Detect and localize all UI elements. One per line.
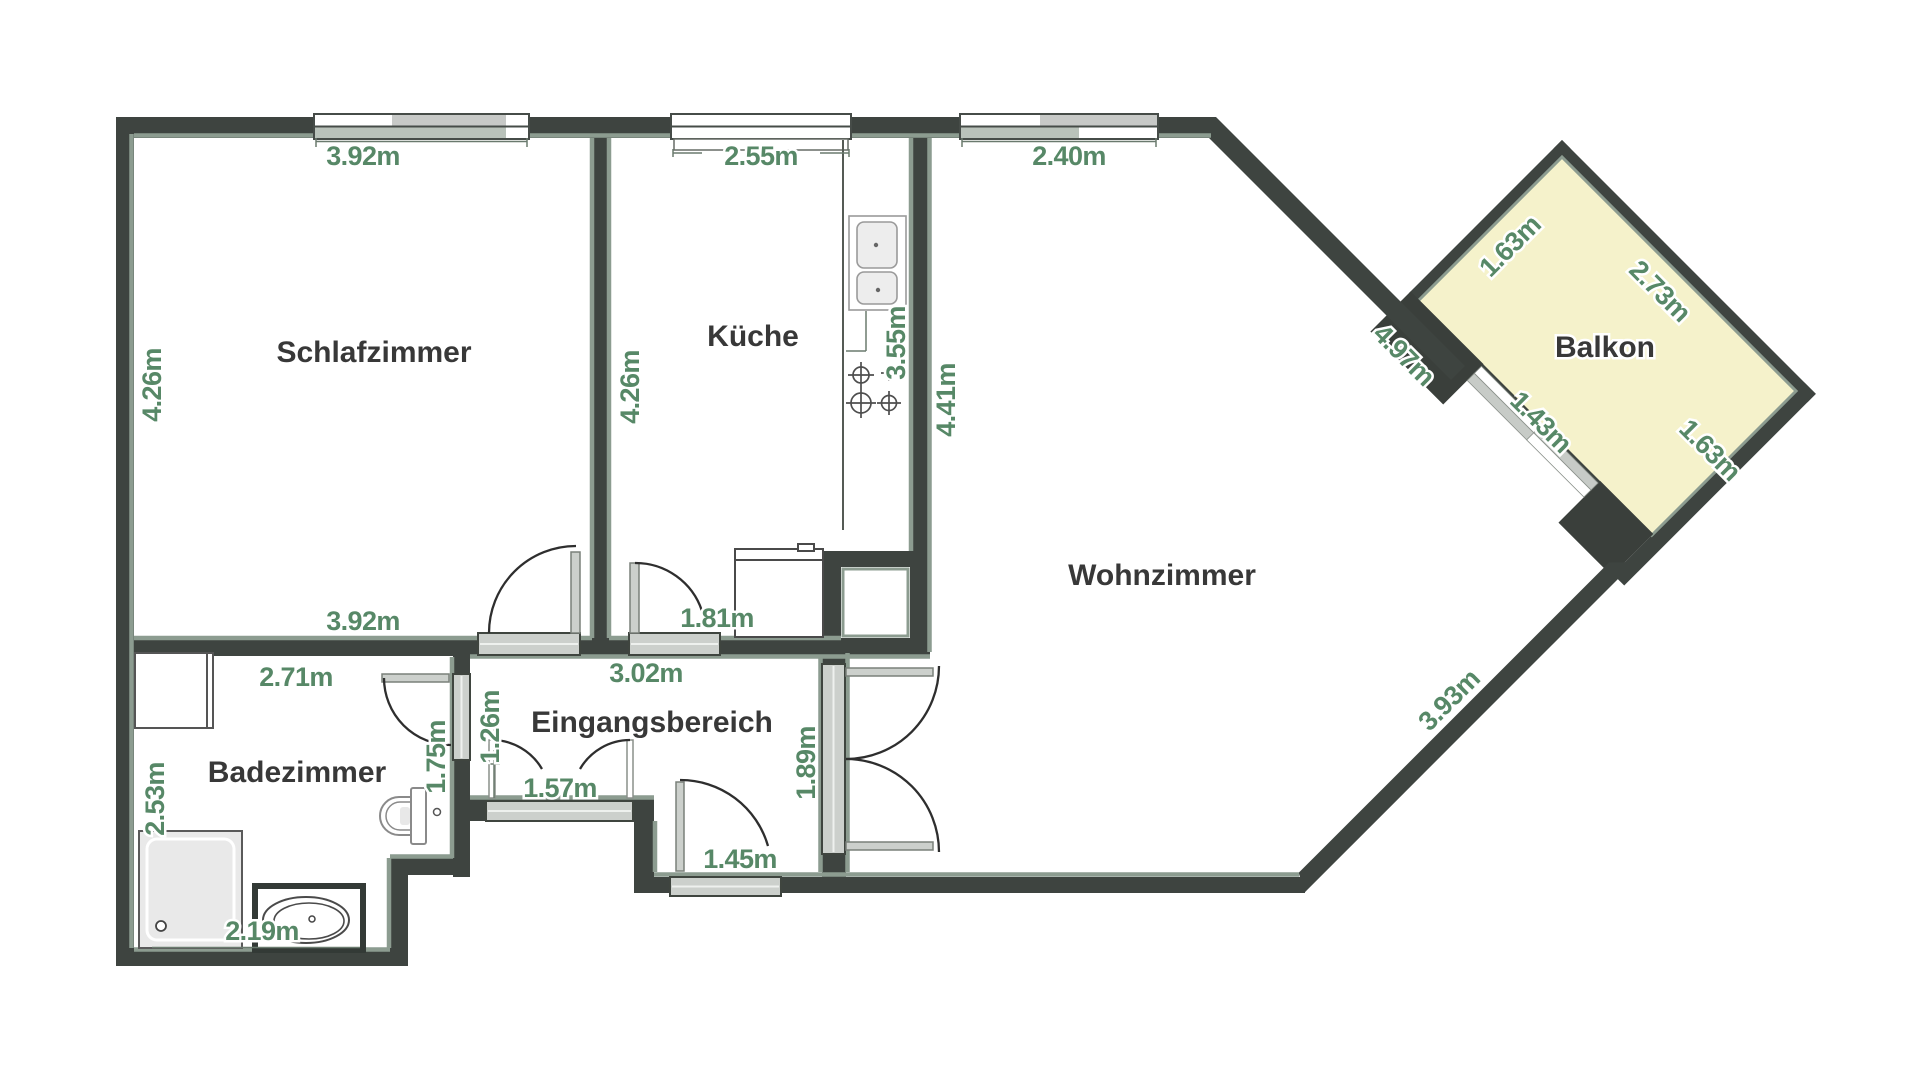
svg-text:1.26m: 1.26m [475,690,505,764]
svg-text:3.92m: 3.92m [326,141,400,171]
svg-text:Badezimmer: Badezimmer [208,756,387,789]
svg-text:1.45m: 1.45m [703,844,777,874]
svg-text:2.55m: 2.55m [724,141,798,171]
svg-text:2.53m: 2.53m [140,762,170,836]
svg-text:1.89m: 1.89m [791,726,821,800]
svg-text:Schlafzimmer: Schlafzimmer [276,336,471,369]
svg-text:2.19m: 2.19m [225,916,299,946]
svg-text:3.92m: 3.92m [326,606,400,636]
svg-text:1.57m: 1.57m [523,773,597,803]
svg-text:4.26m: 4.26m [137,348,167,422]
svg-text:1.75m: 1.75m [421,720,451,794]
svg-text:2.71m: 2.71m [259,662,333,692]
svg-text:Eingangsbereich: Eingangsbereich [531,706,773,739]
svg-text:Wohnzimmer: Wohnzimmer [1068,559,1256,592]
svg-text:3.55m: 3.55m [881,306,911,380]
svg-text:Küche: Küche [707,320,799,353]
svg-text:3.02m: 3.02m [609,658,683,688]
svg-text:Balkon: Balkon [1555,331,1655,364]
svg-text:1.81m: 1.81m [680,603,754,633]
svg-text:4.26m: 4.26m [615,350,645,424]
svg-text:4.41m: 4.41m [931,363,961,437]
svg-text:2.40m: 2.40m [1032,141,1106,171]
